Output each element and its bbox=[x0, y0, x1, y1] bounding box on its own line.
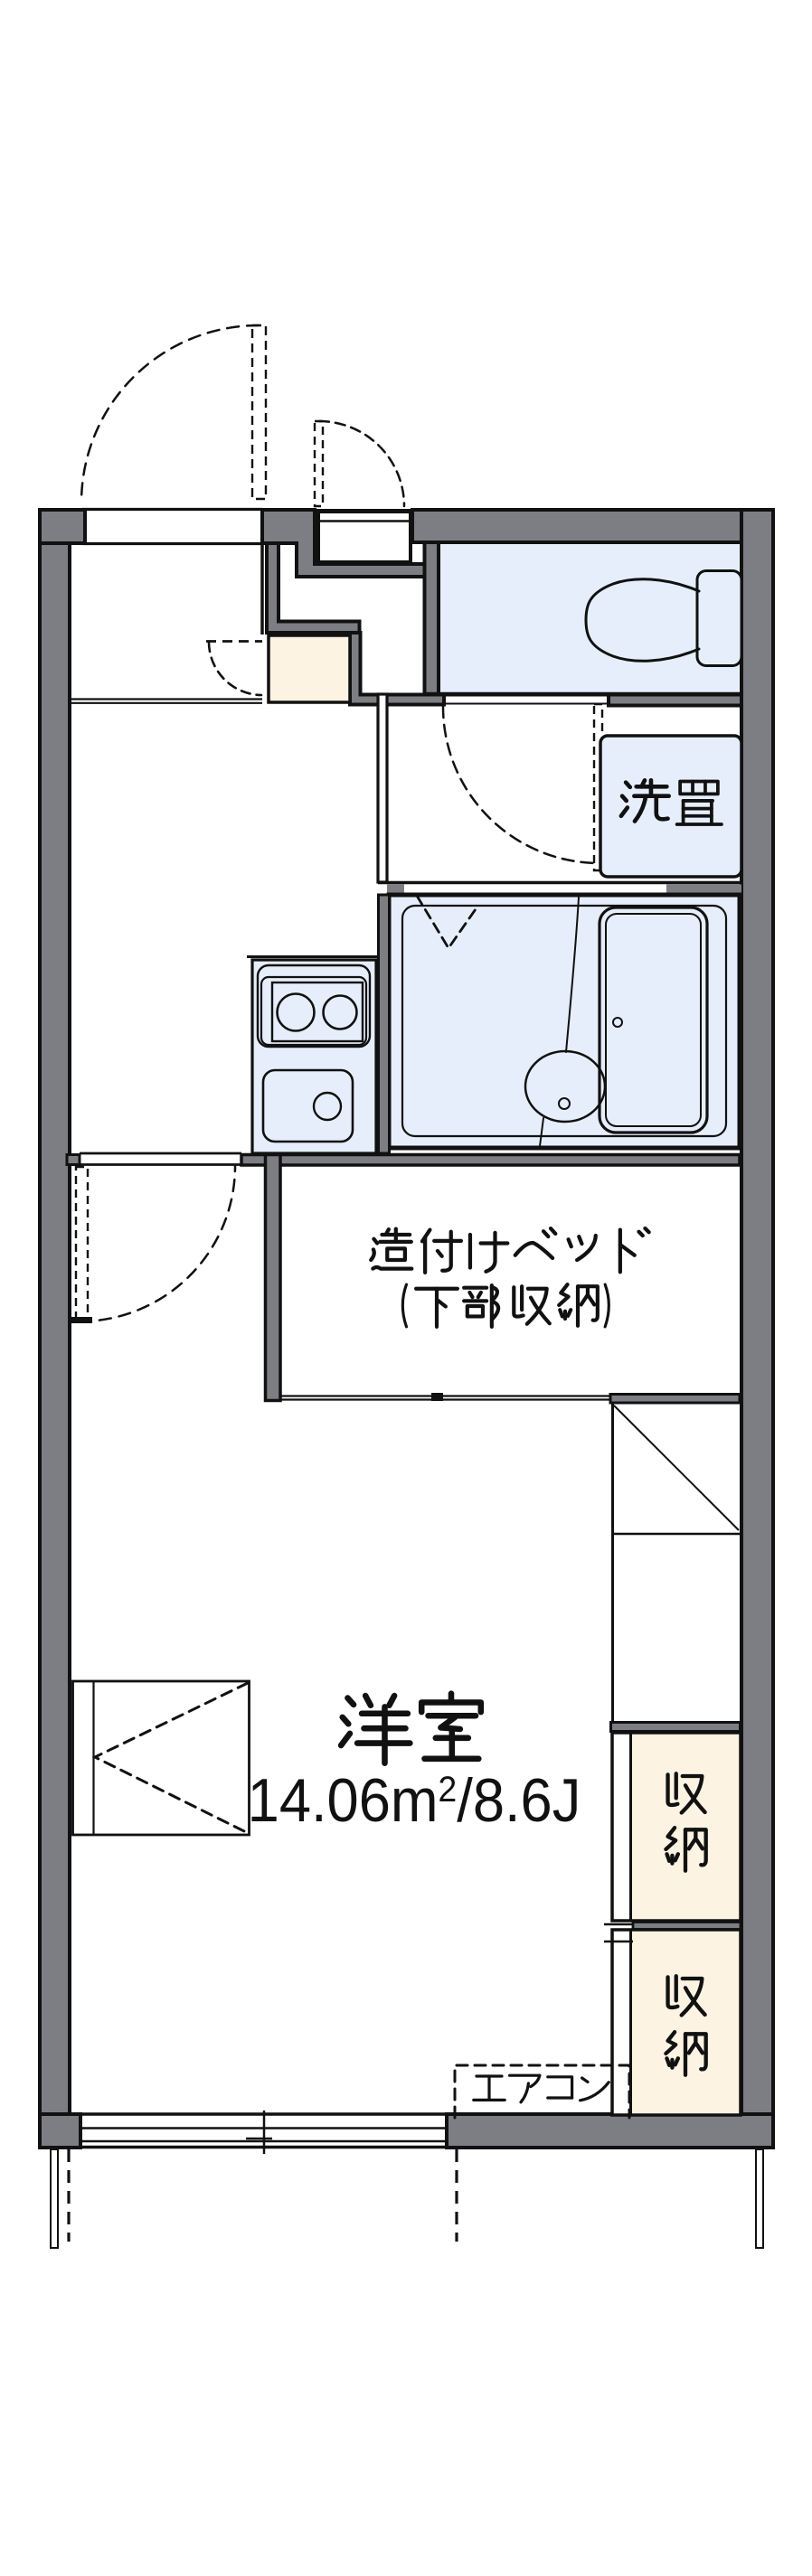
svg-text:14.06m2/8.6J: 14.06m2/8.6J bbox=[248, 1766, 581, 1835]
